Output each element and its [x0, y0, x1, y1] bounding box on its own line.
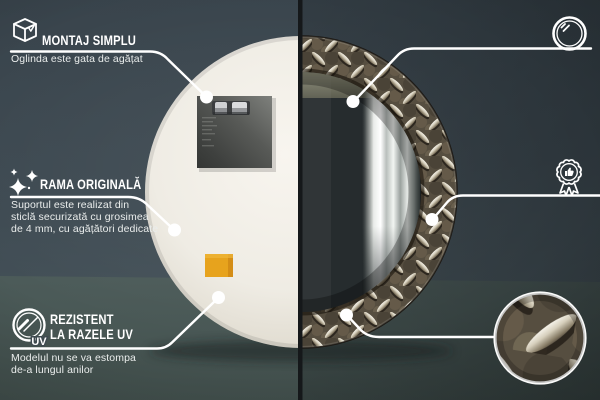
callout-title-line: MONTAJ SIMPLU	[42, 33, 136, 48]
split-divider-line	[298, 0, 303, 400]
leader-line-design	[436, 196, 600, 217]
orange-sticker	[205, 254, 233, 277]
uv-icon: UV	[9, 306, 51, 348]
callout-desc-line: sticlă securizată cu grosimea	[11, 212, 158, 224]
mirror-icon	[551, 15, 588, 52]
callout-title-line: REZISTENT	[50, 312, 133, 327]
callout-title-line: RAMA ORIGINALĂ	[40, 177, 141, 192]
box-icon	[10, 16, 40, 46]
hanger-brackets	[212, 101, 250, 115]
callout-desc-line: Oglinda este gata de agățat	[11, 54, 143, 66]
badge-icon	[552, 158, 586, 198]
callout-title-line: LA RAZELE UV	[50, 327, 133, 342]
product-infographic: MONTAJ SIMPLU Oglinda este gata de agăța…	[0, 0, 600, 400]
sparkles-icon	[8, 166, 40, 198]
texture-detail-circle	[495, 293, 585, 383]
callout-desc-line: de-a lungul anilor	[11, 365, 136, 377]
uv-icon-label: UV	[31, 336, 47, 348]
callout-desc-line: de 4 mm, cu agățători dedicate	[11, 224, 158, 236]
